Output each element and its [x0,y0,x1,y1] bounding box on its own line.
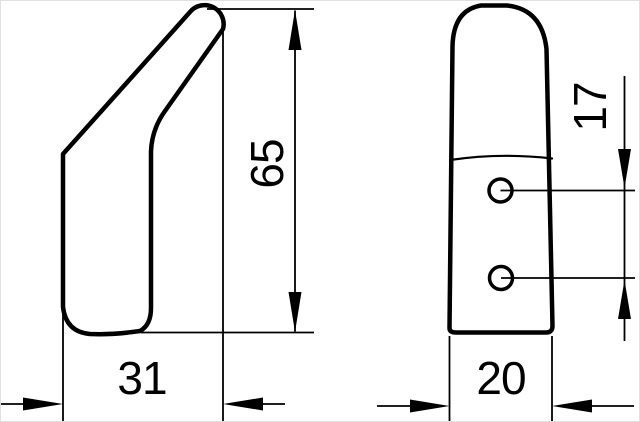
side-view: 65 31 [1,5,314,422]
front-view: 17 20 [377,6,635,422]
arrow-right-icon [410,400,450,413]
dimension-label-height: 65 [241,139,293,188]
arrow-down-icon [618,149,631,188]
dimension-label-depth: 31 [117,352,166,404]
arrow-up-icon [289,10,302,50]
drawing-svg: 65 31 17 [1,1,640,422]
technical-drawing-canvas: 65 31 17 [0,0,640,422]
arrow-down-icon [289,292,302,332]
arrow-up-icon [618,280,631,319]
arrow-left-icon [223,398,263,411]
dimension-label-hole-spacing: 17 [564,82,616,131]
arrow-right-icon [23,398,63,411]
hook-profile-outline [63,5,224,334]
arrow-left-icon [552,400,592,413]
dimension-label-width: 20 [476,352,525,404]
